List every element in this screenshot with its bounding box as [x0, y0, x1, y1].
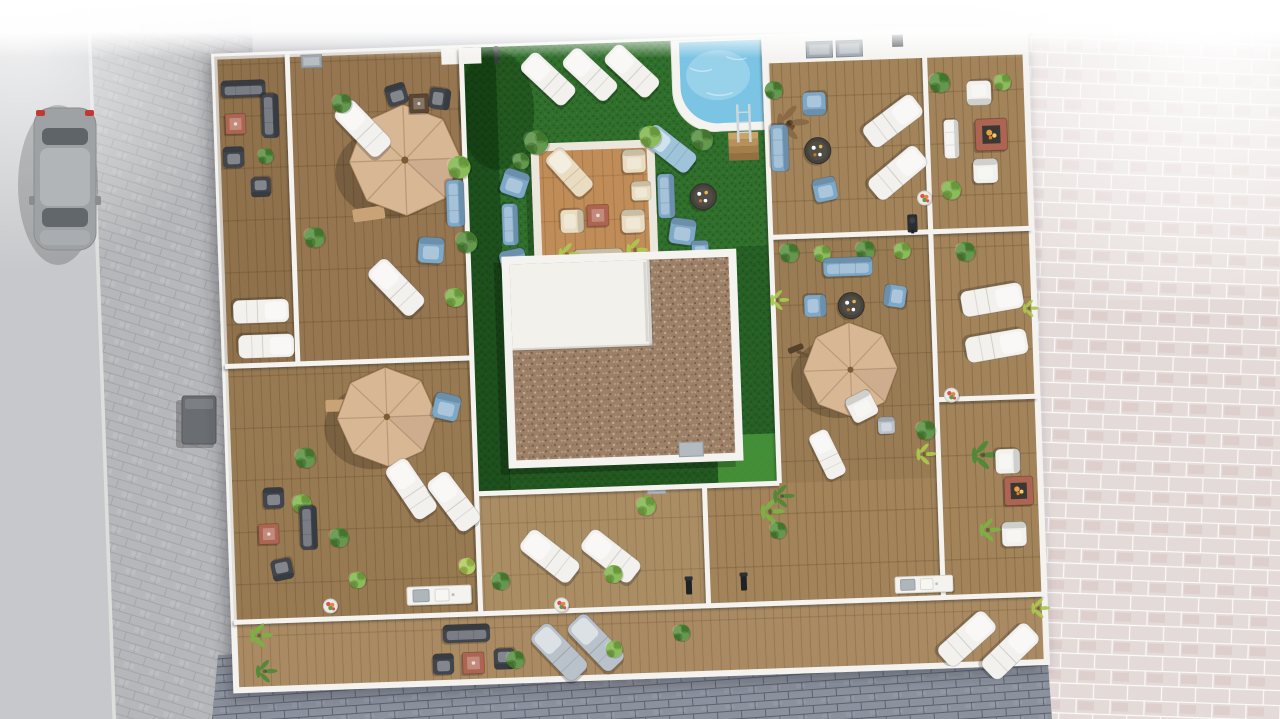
sofa	[219, 79, 266, 99]
ottoman	[876, 417, 895, 436]
armchair	[431, 653, 454, 676]
coffee-table	[223, 113, 246, 136]
step	[728, 139, 758, 147]
car-taillight-left	[36, 110, 45, 116]
sofa	[655, 172, 675, 219]
fire-pit-table	[1002, 476, 1034, 508]
car-mirror-right	[95, 196, 101, 205]
pool-steps	[728, 132, 759, 161]
armchair	[261, 487, 284, 510]
sofa	[768, 122, 789, 171]
coffee-table	[257, 524, 280, 547]
sofa	[500, 202, 519, 246]
sun-lounger	[230, 296, 289, 324]
sofa	[821, 256, 873, 279]
cabinet-top	[185, 399, 213, 409]
car-hood	[40, 230, 90, 245]
armchair	[620, 149, 646, 175]
armchair	[415, 236, 444, 265]
car-roof	[40, 148, 90, 206]
armchair	[802, 293, 827, 318]
air-conditioning-unit	[679, 442, 703, 457]
armchair	[558, 207, 584, 233]
fire-pit-table	[973, 118, 1008, 153]
armchair	[882, 284, 909, 311]
car-mirror-left	[29, 196, 35, 205]
coffee-table	[585, 204, 609, 228]
sun-lounger	[236, 331, 295, 359]
side-table	[407, 94, 429, 116]
armchair	[619, 209, 645, 235]
car-windshield	[42, 208, 88, 227]
car-taillight-right	[85, 110, 94, 116]
armchair	[221, 146, 244, 169]
ottoman	[630, 181, 652, 203]
step	[729, 153, 759, 161]
overexposed-sky-band	[0, 0, 1280, 58]
car	[18, 105, 101, 265]
chair	[426, 85, 451, 110]
outdoor-kitchen	[895, 575, 955, 595]
central-roof-core	[493, 249, 743, 475]
armchair	[1000, 521, 1028, 549]
armchair	[971, 158, 999, 186]
communal-courtyard	[441, 36, 784, 500]
armchair	[993, 447, 1021, 475]
sofa	[444, 178, 465, 227]
step	[729, 146, 759, 154]
outdoor-kitchen	[407, 585, 474, 607]
armchair	[802, 90, 828, 116]
building-rooftop	[214, 27, 1053, 710]
coffee-table	[461, 652, 485, 676]
aerial-render: Aerial 3D architectural render of an apa…	[0, 0, 1280, 719]
armchair	[251, 175, 273, 197]
loveseat	[942, 118, 960, 159]
sofa	[298, 504, 318, 551]
white-flat-roof	[510, 260, 653, 351]
sofa	[259, 92, 279, 139]
sofa	[441, 623, 490, 644]
car-rear-window	[42, 128, 88, 145]
bbq-grill	[907, 214, 918, 233]
screenshot: Aerial 3D architectural render of an apa…	[0, 0, 1280, 719]
armchair	[966, 78, 994, 106]
utility-cabinet	[176, 396, 216, 448]
